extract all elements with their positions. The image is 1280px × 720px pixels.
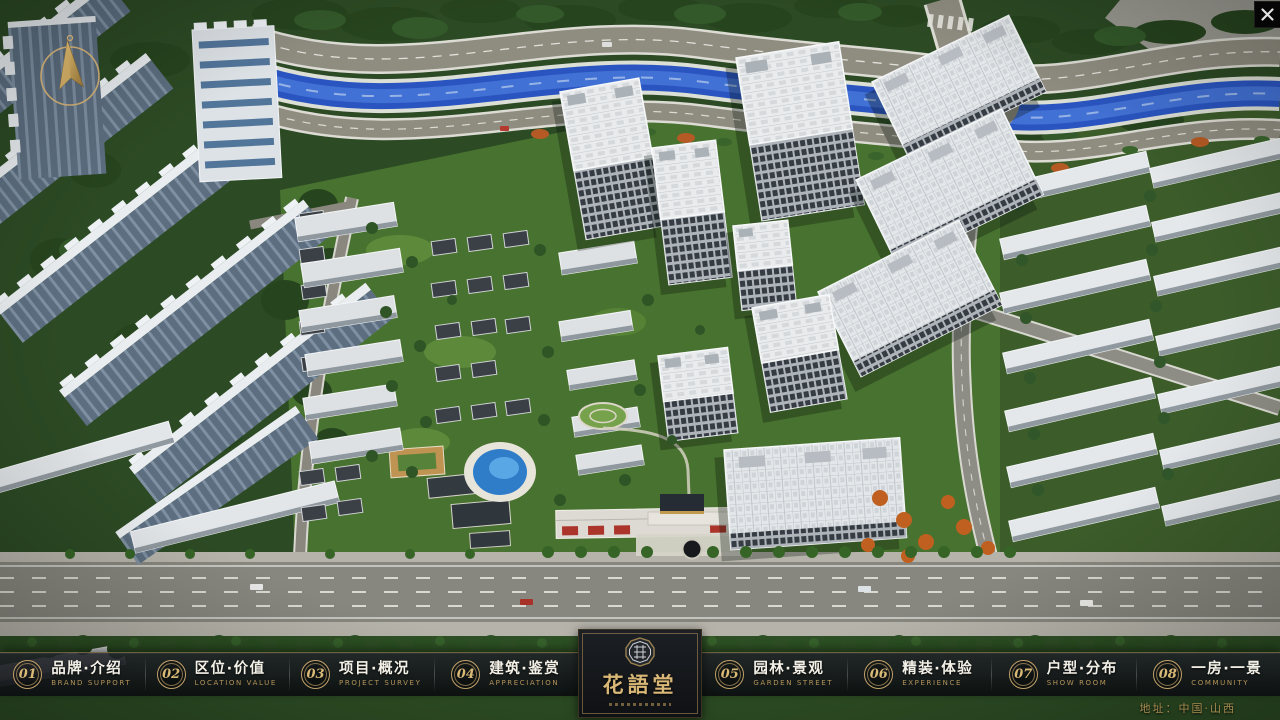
nav-sublabel: GARDEN STREET	[753, 680, 833, 687]
nav-label: 区位·价值	[195, 662, 266, 677]
project-logo[interactable]: 花語堂	[578, 629, 702, 718]
nav-number-badge: 01	[13, 660, 42, 689]
nav-number: 01	[19, 667, 37, 682]
nav-label: 品牌·介绍	[51, 662, 122, 677]
nav-number: 02	[162, 667, 180, 682]
nav-label: 项目·概况	[339, 662, 410, 677]
seal-icon	[625, 637, 655, 667]
nav-sublabel: BRAND SUPPORT	[51, 680, 131, 687]
nav-number: 08	[1159, 667, 1177, 682]
nav-number: 06	[870, 667, 888, 682]
nav-number-badge: 03	[301, 660, 330, 689]
nav-number: 05	[721, 667, 739, 682]
nav-item-location[interactable]: 02 区位·价值LOCATION VALUE	[145, 653, 290, 696]
nav-sublabel: COMMUNITY	[1191, 680, 1249, 687]
vignette	[0, 0, 1280, 720]
nav-item-brand[interactable]: 01 品牌·介绍BRAND SUPPORT	[0, 653, 145, 696]
nav-sublabel: PROJECT SURVEY	[339, 680, 421, 687]
nav-sublabel: EXPERIENCE	[902, 680, 962, 687]
nav-label: 一房·一景	[1191, 662, 1262, 677]
logo-microtext	[609, 703, 671, 706]
nav-number-badge: 07	[1009, 660, 1038, 689]
nav-sublabel: LOCATION VALUE	[195, 680, 277, 687]
site-plan-3d-view[interactable]	[0, 0, 1280, 720]
nav-label: 建筑·鉴赏	[489, 662, 560, 677]
nav-number-badge: 02	[157, 660, 186, 689]
nav-item-views[interactable]: 08 一房·一景COMMUNITY	[1136, 653, 1280, 696]
nav-number-badge: 04	[451, 660, 480, 689]
nav-item-interior[interactable]: 06 精装·体验EXPERIENCE	[847, 653, 992, 696]
nav-label: 园林·景观	[753, 662, 824, 677]
address-text: 地址：中国·山西	[1140, 700, 1237, 716]
nav-number: 03	[307, 667, 325, 682]
nav-label: 户型·分布	[1047, 662, 1118, 677]
close-icon	[1260, 7, 1275, 22]
nav-item-garden[interactable]: 05 园林·景观GARDEN STREET	[702, 653, 847, 696]
nav-right-group: 05 园林·景观GARDEN STREET 06 精装·体验EXPERIENCE…	[702, 653, 1280, 696]
nav-number: 07	[1014, 667, 1032, 682]
close-button[interactable]	[1255, 2, 1280, 27]
nav-label: 精装·体验	[902, 662, 973, 677]
nav-item-architecture[interactable]: 04 建筑·鉴赏APPRECIATION	[434, 653, 579, 696]
nav-sublabel: SHOW ROOM	[1047, 680, 1108, 687]
compass-icon	[34, 24, 106, 110]
nav-item-floorplan[interactable]: 07 户型·分布SHOW ROOM	[991, 653, 1136, 696]
nav-sublabel: APPRECIATION	[489, 680, 559, 687]
nav-number-badge: 06	[864, 660, 893, 689]
nav-left-group: 01 品牌·介绍BRAND SUPPORT 02 区位·价值LOCATION V…	[0, 653, 578, 696]
nav-number: 04	[457, 667, 475, 682]
nav-item-project[interactable]: 03 项目·概况PROJECT SURVEY	[289, 653, 434, 696]
logo-title: 花語堂	[603, 669, 678, 699]
app-window: 01 品牌·介绍BRAND SUPPORT 02 区位·价值LOCATION V…	[0, 0, 1280, 720]
nav-number-badge: 05	[715, 660, 744, 689]
nav-number-badge: 08	[1153, 660, 1182, 689]
